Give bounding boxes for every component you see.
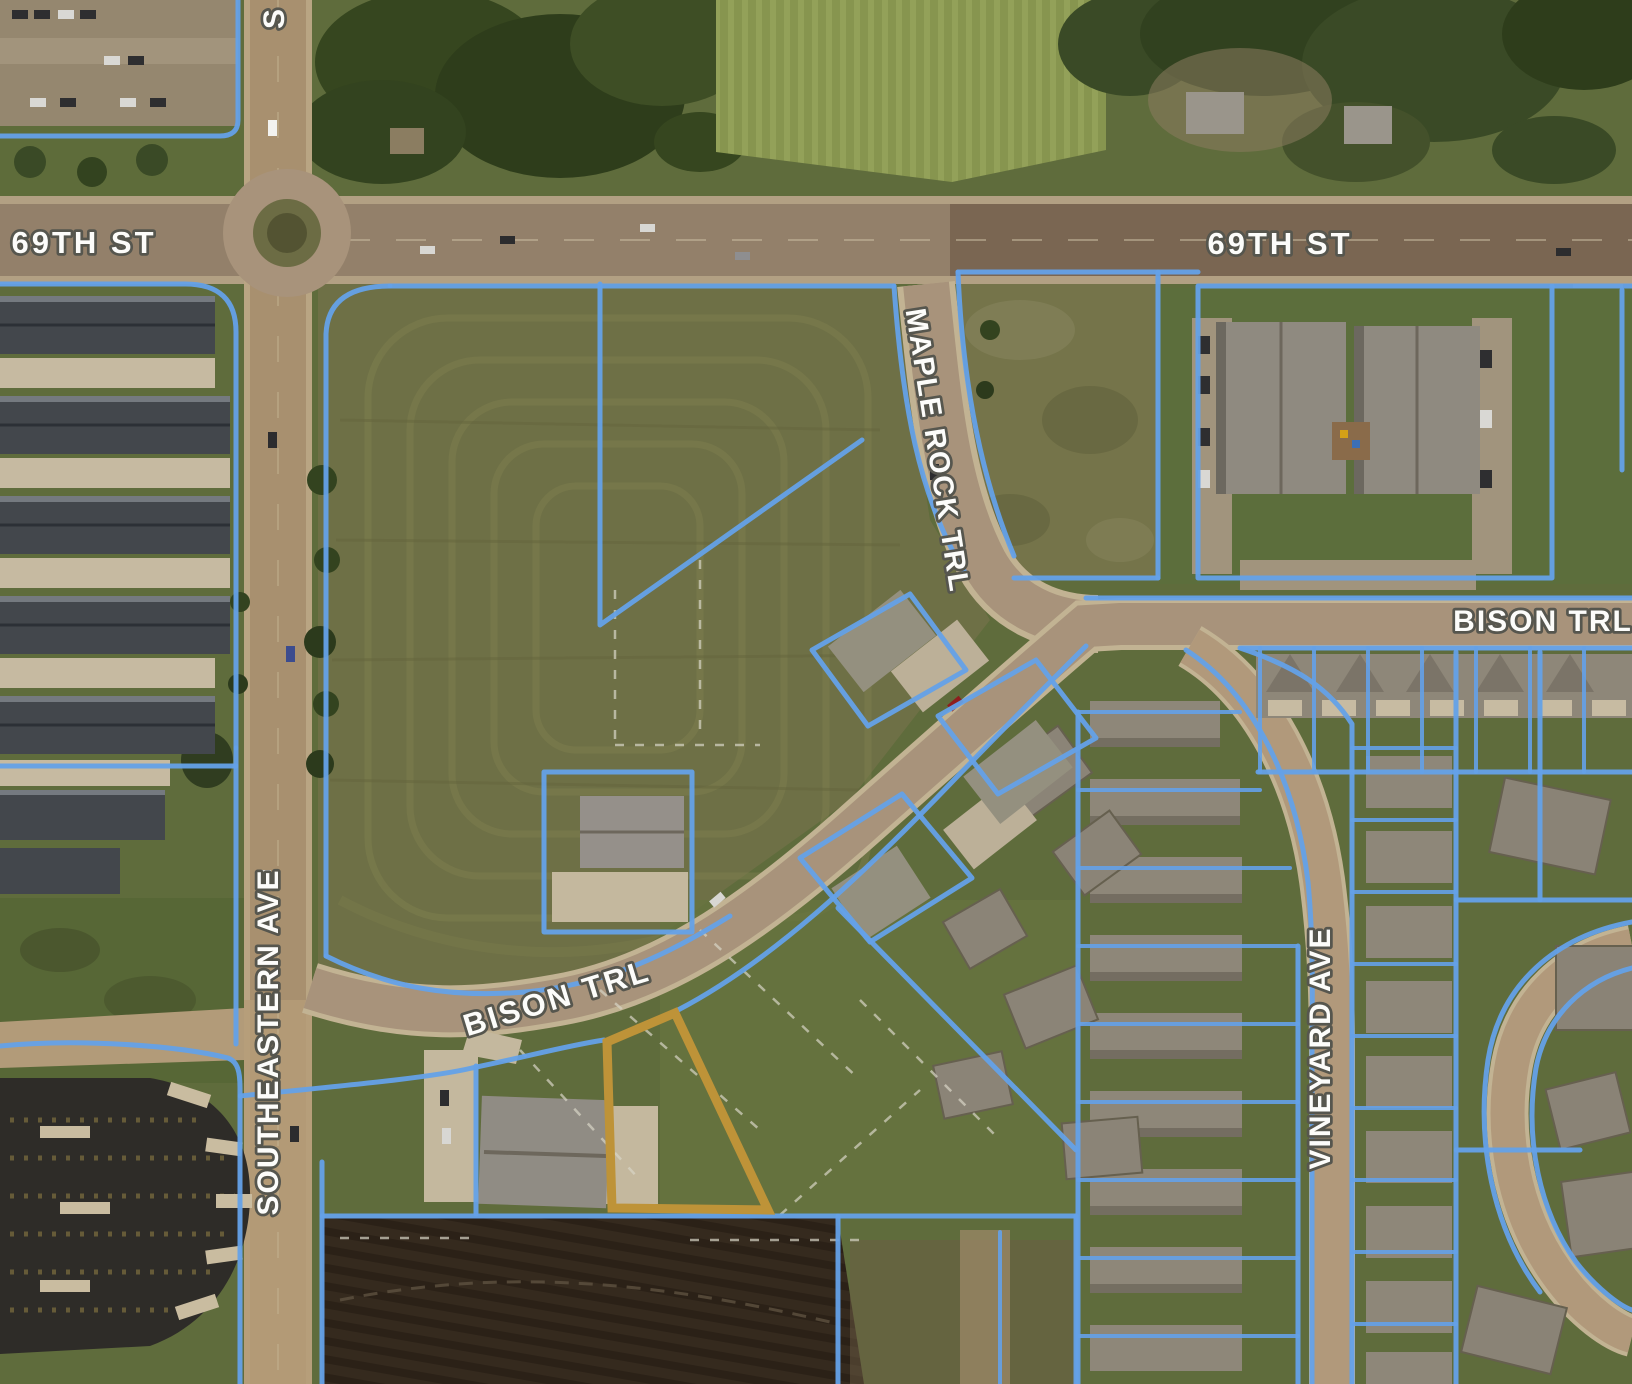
playground xyxy=(1332,422,1370,460)
townhome-rows-west-vineyard xyxy=(1090,701,1242,1371)
map-viewport[interactable]: 69TH ST69TH STSMAPLE ROCK TRLBISON TRLBI… xyxy=(0,0,1632,1384)
street-label-bison-trl-east: BISON TRL xyxy=(1453,605,1632,638)
street-label-street-partial-north: S xyxy=(258,7,291,29)
houses-east-vineyard xyxy=(1366,756,1452,1384)
plowed-field xyxy=(322,1218,1076,1384)
street-label-vineyard-ave: VINEYARD AVE xyxy=(1304,927,1337,1170)
aerial-map-svg: 69TH ST69TH STSMAPLE ROCK TRLBISON TRLBI… xyxy=(0,0,1632,1384)
trees-top-center xyxy=(298,0,754,184)
street-label-southeastern-ave: SOUTHEASTERN AVE xyxy=(252,868,285,1215)
roundabout xyxy=(223,169,351,297)
crop-field xyxy=(716,0,1106,182)
street-label-69th-st-west: 69TH ST xyxy=(11,225,156,260)
street-label-69th-st-east: 69TH ST xyxy=(1207,226,1352,261)
